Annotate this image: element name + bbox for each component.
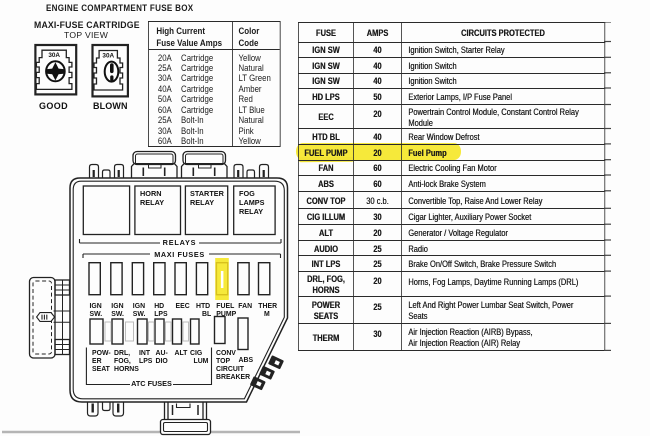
svg-text:ER: ER bbox=[92, 358, 102, 365]
svg-text:POW-: POW- bbox=[92, 350, 111, 357]
svg-text:30A: 30A bbox=[48, 52, 60, 59]
svg-text:GOOD: GOOD bbox=[39, 101, 68, 111]
svg-text:INT: INT bbox=[139, 350, 151, 357]
svg-text:IGN: IGN bbox=[133, 303, 145, 310]
svg-text:BLOWN: BLOWN bbox=[93, 101, 128, 111]
svg-text:HORN: HORN bbox=[140, 189, 162, 198]
svg-text:30A: 30A bbox=[102, 52, 114, 59]
svg-text:RELAYS: RELAYS bbox=[163, 238, 197, 247]
svg-text:HTD: HTD bbox=[196, 303, 210, 310]
svg-text:BL: BL bbox=[202, 311, 211, 318]
svg-text:IGN: IGN bbox=[111, 303, 123, 310]
svg-text:ABS: ABS bbox=[239, 357, 254, 364]
svg-text:STARTER: STARTER bbox=[190, 189, 225, 198]
svg-text:LPS: LPS bbox=[139, 358, 153, 365]
svg-text:LAMPS: LAMPS bbox=[239, 198, 265, 207]
svg-text:CONV: CONV bbox=[216, 350, 236, 357]
svg-text:THER: THER bbox=[258, 303, 277, 310]
svg-text:ATC FUSES: ATC FUSES bbox=[131, 379, 172, 388]
svg-text:SEAT: SEAT bbox=[92, 366, 111, 373]
svg-text:BREAKER: BREAKER bbox=[216, 374, 250, 381]
svg-text:MAXI FUSES: MAXI FUSES bbox=[154, 250, 205, 259]
svg-text:RELAY: RELAY bbox=[190, 198, 214, 207]
svg-text:FOG: FOG bbox=[239, 189, 255, 198]
svg-text:IGN: IGN bbox=[90, 303, 102, 310]
svg-text:ALT: ALT bbox=[175, 350, 189, 357]
svg-text:SW.: SW. bbox=[90, 311, 103, 318]
svg-text:FAN: FAN bbox=[238, 303, 252, 310]
svg-text:DIO: DIO bbox=[156, 358, 169, 365]
svg-text:RELAY: RELAY bbox=[239, 207, 263, 216]
svg-text:LUM: LUM bbox=[194, 358, 209, 365]
svg-text:M: M bbox=[264, 311, 270, 318]
svg-text:EEC: EEC bbox=[176, 303, 190, 310]
svg-text:AU-: AU- bbox=[156, 350, 169, 357]
svg-text:TOP: TOP bbox=[216, 358, 230, 365]
svg-text:SW.: SW. bbox=[133, 311, 146, 318]
svg-text:SW.: SW. bbox=[111, 311, 124, 318]
svg-text:FUEL: FUEL bbox=[216, 303, 234, 310]
svg-text:HD: HD bbox=[154, 303, 164, 310]
svg-text:CIRCUIT: CIRCUIT bbox=[216, 366, 245, 373]
svg-text:FOG,: FOG, bbox=[114, 358, 131, 365]
svg-text:CIG: CIG bbox=[190, 350, 202, 357]
svg-text:HORNS: HORNS bbox=[114, 366, 139, 373]
svg-text:RELAY: RELAY bbox=[140, 198, 164, 207]
svg-text:DRL,: DRL, bbox=[114, 350, 130, 357]
svg-text:LPS: LPS bbox=[154, 311, 168, 318]
